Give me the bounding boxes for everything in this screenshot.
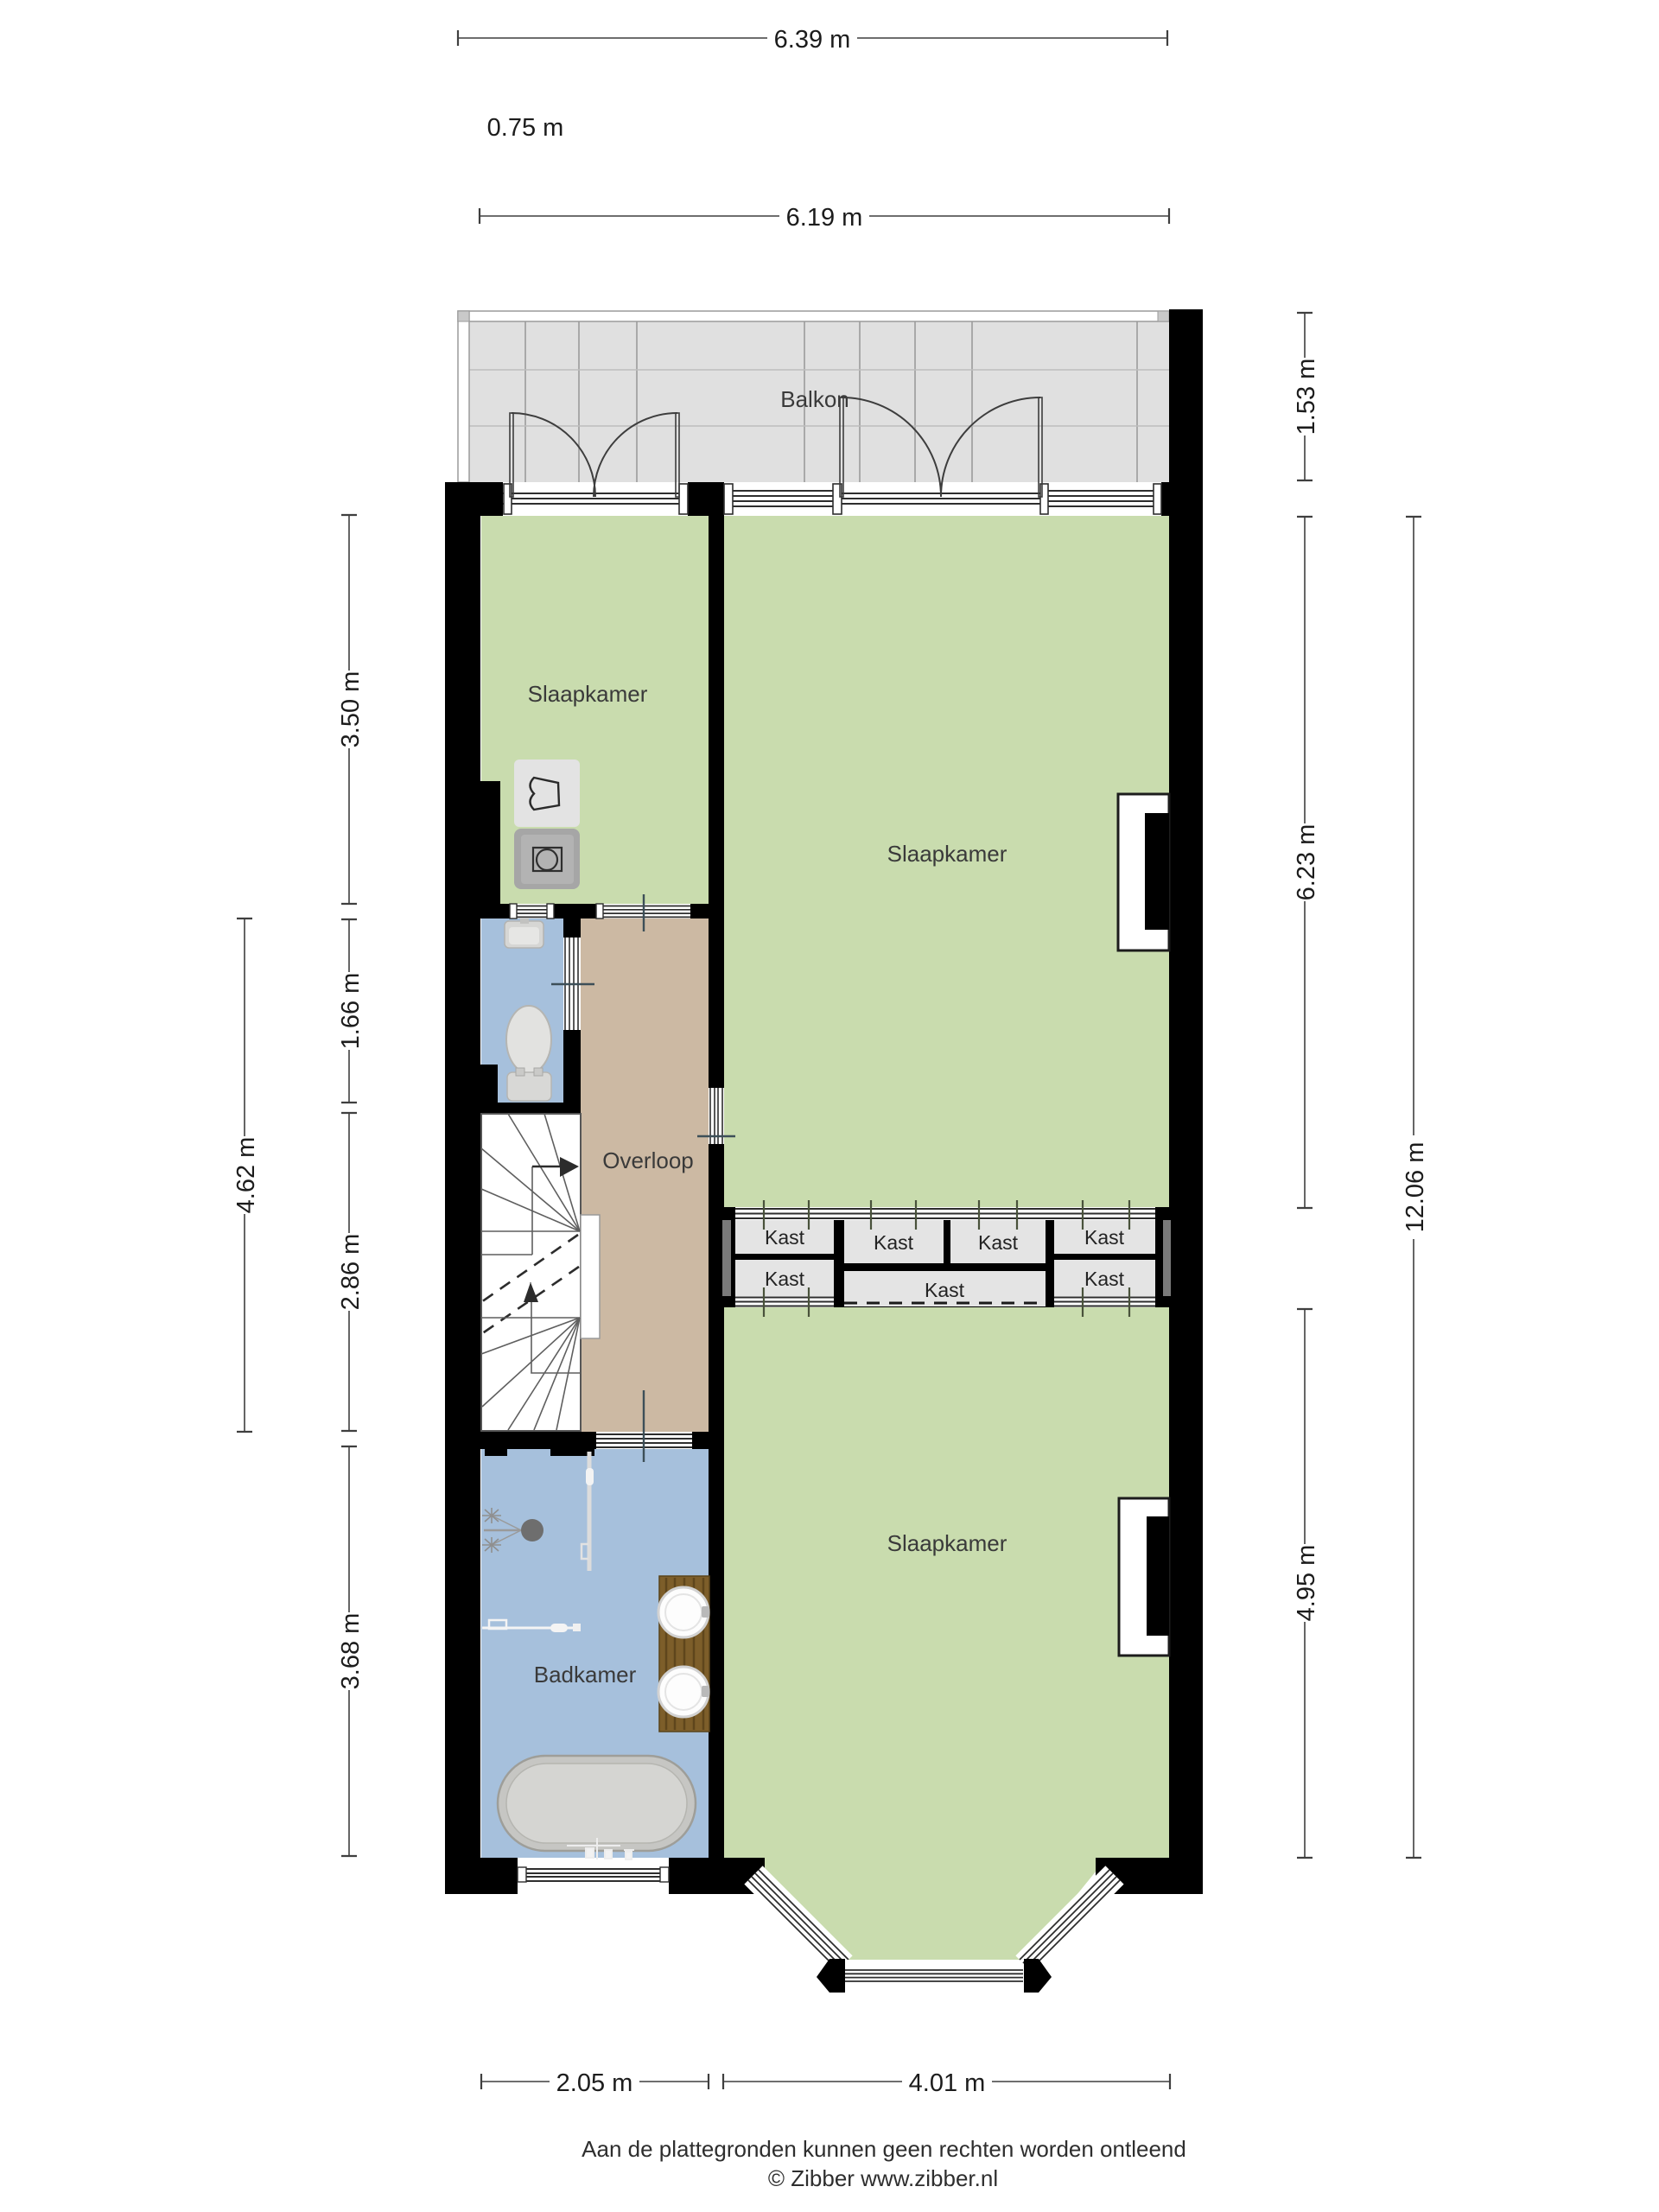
svg-text:Overloop: Overloop	[602, 1147, 694, 1173]
svg-text:Kast: Kast	[765, 1226, 805, 1249]
svg-text:1.53 m: 1.53 m	[1293, 359, 1320, 435]
svg-text:2.86 m: 2.86 m	[337, 1234, 365, 1311]
svg-text:Slaapkamer: Slaapkamer	[528, 681, 648, 707]
svg-text:Kast: Kast	[925, 1279, 965, 1301]
svg-text:© Zibber www.zibber.nl: © Zibber www.zibber.nl	[768, 2165, 998, 2191]
svg-text:Kast: Kast	[874, 1231, 914, 1254]
svg-text:Kast: Kast	[765, 1268, 805, 1290]
svg-text:12.06 m: 12.06 m	[1402, 1142, 1429, 1233]
svg-text:2.05 m: 2.05 m	[556, 2069, 633, 2097]
svg-text:Slaapkamer: Slaapkamer	[887, 841, 1007, 867]
svg-text:Aan de plattegronden kunnen ge: Aan de plattegronden kunnen geen rechten…	[582, 2136, 1186, 2162]
svg-text:Kast: Kast	[1084, 1268, 1125, 1290]
svg-text:4.01 m: 4.01 m	[909, 2069, 986, 2097]
svg-text:0.75 m: 0.75 m	[487, 114, 564, 142]
svg-text:Kast: Kast	[978, 1231, 1019, 1254]
svg-text:Slaapkamer: Slaapkamer	[887, 1530, 1007, 1556]
svg-text:6.23 m: 6.23 m	[1293, 824, 1320, 901]
svg-text:4.95 m: 4.95 m	[1293, 1545, 1320, 1622]
svg-text:6.39 m: 6.39 m	[774, 26, 851, 54]
svg-text:4.62 m: 4.62 m	[232, 1137, 260, 1214]
svg-text:3.68 m: 3.68 m	[337, 1613, 365, 1690]
svg-text:Balkon: Balkon	[780, 386, 849, 412]
svg-text:6.19 m: 6.19 m	[786, 204, 863, 232]
svg-text:3.50 m: 3.50 m	[337, 671, 365, 748]
svg-text:Badkamer: Badkamer	[534, 1662, 637, 1688]
svg-text:1.66 m: 1.66 m	[337, 973, 365, 1050]
svg-text:Kast: Kast	[1084, 1226, 1125, 1249]
